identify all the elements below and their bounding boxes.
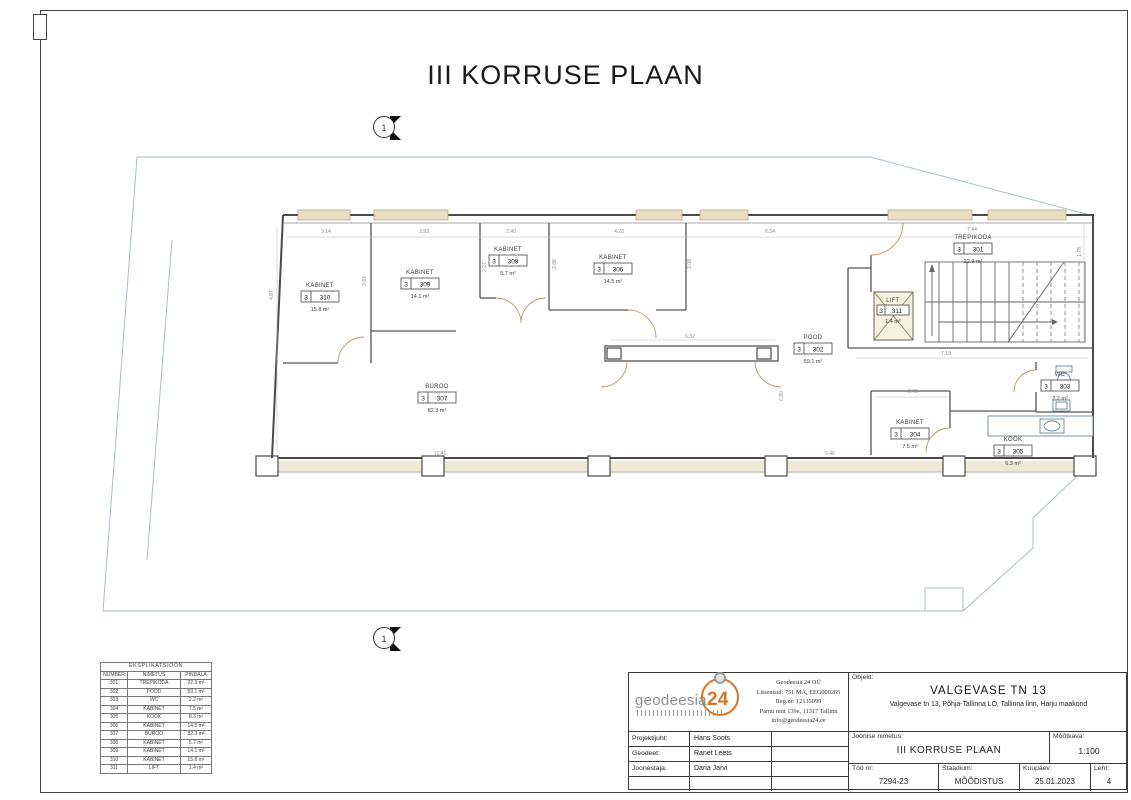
explication-cell: LIFT [128,765,181,774]
svg-text:3: 3 [957,247,961,254]
svg-text:14.1 m²: 14.1 m² [411,294,430,300]
pillar [943,456,965,476]
explication-cell: 310 [101,756,128,765]
room-label-301: TREPIKODA 3 301 22.9 m² [954,235,992,265]
explication-cell: 14.5 m² [181,722,212,731]
empty-cell [629,776,689,791]
svg-text:303: 303 [1060,384,1071,391]
explication-row: 304KABINET7.5 m² [101,705,212,714]
svg-text:6.3 m²: 6.3 m² [1005,461,1021,467]
logo-compass-icon [714,672,726,684]
dimension-label: 3.14 [321,229,331,235]
door-arc [871,223,903,255]
kitchen-sink-icon [1044,421,1060,431]
explication-cell: TREPIKODA [128,680,181,689]
door-arc [521,298,546,323]
svg-text:22.9 m²: 22.9 m² [964,259,983,265]
too-value: 7294-23 [849,777,938,786]
explication-title: EKSPLIKATSIOON [101,663,212,672]
explication-row: 311LIFT1.4 m² [101,765,212,774]
joonise-label: Joonise nimetus: [852,733,903,740]
company-regnr: Reg.nr: 12135099 [749,697,848,706]
svg-text:5.7 m²: 5.7 m² [500,271,516,277]
svg-text:3: 3 [894,432,898,439]
staadium-label: Staadium: [942,765,973,772]
dimension-label: 3.87 [362,276,368,286]
site-boundary [103,157,1094,611]
svg-text:3: 3 [1044,384,1048,391]
svg-text:3: 3 [304,295,308,302]
dimension-label: 7.44 [967,227,977,233]
dimension-label: 2.72 [908,389,918,395]
company-address: Pärnu mnt 139e, 11317 Tallinn [749,707,848,716]
explication-cell: 2.2 m² [181,697,212,706]
joonestaja-value-cell: Daria Jarvi [689,761,771,776]
window [888,210,972,220]
objekt-address: Valgevase tn 13, Põhja-Tallinna LO, Tall… [849,701,1128,708]
door-arc [601,361,627,387]
geodeet-value-cell: Ranet Leets [689,746,771,761]
explication-row: 302POOD59.1 m² [101,688,212,697]
svg-text:KABINET: KABINET [306,283,334,289]
frame-tab [33,14,47,40]
logo-ruler-icon [637,710,723,716]
projektijuht-label-cell: Projektijuht: [629,731,689,746]
svg-text:LIFT: LIFT [886,298,900,304]
leht-value: 4 [1091,777,1127,786]
logo-text-orange: 24 [707,689,729,710]
joonestaja-label-cell: Joonestaja: [629,761,689,776]
room-label-310: KABINET 3 310 15.8 m² [301,283,339,313]
explication-cell: KABINET [128,705,181,714]
section-marker-number: 1 [373,116,395,138]
svg-text:KABINET: KABINET [494,247,522,253]
mootkava-cell: Mõõtkava: 1:100 [1049,731,1128,763]
explication-col-nimetus: NIMETUS [128,671,181,680]
svg-text:1.4 m²: 1.4 m² [885,319,901,325]
explication-body: 301TREPIKODA22.9 m²302POOD59.1 m²303WC2.… [101,680,212,774]
explication-cell: 7.5 m² [181,705,212,714]
dimension-label: 4.28 [614,229,624,235]
svg-text:306: 306 [613,267,624,274]
door-arc [926,428,950,452]
room-label-303: WC 3 303 2.2 m² [1041,372,1079,402]
explication-row: 310KABINET15.8 m² [101,756,212,765]
svg-text:305: 305 [1013,449,1024,456]
explication-table: EKSPLIKATSIOON NUMBER NIMETUS PINDALA 30… [100,662,212,774]
svg-text:TREPIKODA: TREPIKODA [954,235,991,241]
svg-text:15.8 m²: 15.8 m² [311,307,330,313]
svg-text:3: 3 [879,308,883,315]
stair-walk-arrow-icon [1052,319,1058,325]
stair-up-arrow-icon [929,264,935,272]
svg-text:3: 3 [797,347,801,354]
explication-cell: WC [128,697,181,706]
kuupaev-label: Kuupäev: [1023,765,1052,772]
company-logo: geodeesia24 [629,673,747,729]
svg-text:311: 311 [892,308,903,315]
room-label-308: KABINET 3 308 5.7 m² [489,247,527,277]
explication-row: 303WC2.2 m² [101,697,212,706]
staadium-value: MÕÕDISTUS [939,777,1019,786]
explication-cell: 8.3 m² [181,714,212,723]
joonise-name: III KORRUSE PLAAN [849,745,1049,756]
empty-cell [771,776,848,791]
door-arc [628,310,656,338]
objekt-cell: Objekt: VALGEVASE TN 13 Valgevase tn 13,… [848,673,1128,731]
pillar [1074,456,1096,476]
logo-text: geodeesia24 [635,689,729,711]
dimension-label: 6.32 [685,334,695,340]
company-name: Geodeesia 24 OÜ [749,678,848,687]
svg-text:KABINET: KABINET [599,255,627,261]
svg-text:301: 301 [973,247,984,254]
page-title: III KORRUSE PLAAN [0,60,1131,91]
kuupaev-value: 25.01.2023 [1020,777,1090,786]
staadium-cell: Staadium: MÕÕDISTUS [938,763,1019,791]
explication-cell: 22.9 m² [181,680,212,689]
explication-cell: 82.3 m² [181,731,212,740]
dimension-label: 2.40 [506,229,516,235]
explication-cell: 14.1 m² [181,748,212,757]
logo-cell: geodeesia24 [629,673,749,731]
pillar [765,456,787,476]
svg-text:307: 307 [437,396,448,403]
svg-text:POOD: POOD [804,335,823,341]
explication-row: 306KABINET14.5 m² [101,722,212,731]
explication-cell: 1.4 m² [181,765,212,774]
explication-cell: KABINET [128,748,181,757]
explication-cell: 307 [101,731,128,740]
empty-cell [771,746,848,761]
pillar [588,456,610,476]
explication-cell: KÖÖK [128,714,181,723]
explication-cell: 15.8 m² [181,756,212,765]
dimension-label: 1.78 [1077,247,1083,257]
explication-cell: 308 [101,739,128,748]
window [988,210,1066,220]
svg-text:7.5 m²: 7.5 m² [902,444,918,450]
svg-text:309: 309 [420,282,431,289]
explication-cell: 305 [101,714,128,723]
explication-cell: 5.7 m² [181,739,212,748]
svg-text:308: 308 [508,259,519,266]
explication-cell: POOD [128,688,181,697]
svg-text:59.1 m²: 59.1 m² [804,359,823,365]
explication-cell: KABINET [128,756,181,765]
sink-icon [1056,402,1067,409]
svg-text:82.3 m²: 82.3 m² [428,408,447,414]
pillar [422,456,444,476]
svg-text:WC: WC [1055,372,1066,378]
title-block: geodeesia24 Geodeesia 24 OÜ Litsentsid: … [628,672,1127,790]
room-label-304: KABINET 3 304 7.5 m² [891,420,929,450]
explication-cell: 309 [101,748,128,757]
sheet: III KORRUSE PLAAN 1 1 [0,0,1131,800]
company-info-cell: Geodeesia 24 OÜ Litsentsid: 751 MA, EEG0… [749,673,848,731]
window [298,210,350,220]
explication-cell: 311 [101,765,128,774]
svg-text:3: 3 [597,267,601,274]
projektijuht-value-cell: Hans Soots [689,731,771,746]
fixtures [988,366,1093,436]
leht-cell: Leht: 4 [1090,763,1127,791]
section-marker-top: 1 [373,115,407,141]
stairs [925,262,1085,342]
kuupaev-cell: Kuupäev: 25.01.2023 [1019,763,1090,791]
dimension-label: 6.34 [765,229,775,235]
window [700,210,748,220]
company-license: Litsentsid: 751 MA, EEG000265 [749,688,848,697]
room-label-302: POOD 3 302 59.1 m² [794,335,832,365]
svg-text:3: 3 [404,282,408,289]
svg-text:3: 3 [492,259,496,266]
dimension-label: 3.08 [687,259,693,269]
dimension-label: 6.46 [825,451,835,457]
door-arc [1014,370,1036,392]
dimension-label: 4.87 [269,290,275,300]
dimension-label: 7.19 [941,351,951,357]
explication-row: 307BÜROO82.3 m² [101,731,212,740]
bottom-facade [256,456,1096,476]
door-arc [496,298,521,323]
dimension-label: 12.41 [434,451,447,457]
svg-text:BÜROO: BÜROO [425,383,449,390]
explication-cell: 303 [101,697,128,706]
svg-text:302: 302 [813,347,824,354]
window [636,210,682,220]
explication-row: 305KÖÖK8.3 m² [101,714,212,723]
dimension-label: 2.27 [482,262,488,272]
svg-text:3: 3 [997,449,1001,456]
svg-text:KÖÖK: KÖÖK [1004,436,1023,443]
empty-cell [771,731,848,746]
door-arc [338,337,364,363]
explication-col-pindala: PINDALA [181,671,212,680]
dimension-label: 6.80 [779,391,785,401]
svg-text:310: 310 [320,295,331,302]
explication-cell: 306 [101,722,128,731]
objekt-name: VALGEVASE TN 13 [849,685,1128,697]
leht-label: Leht: [1094,765,1109,772]
explication-cell: KABINET [128,739,181,748]
room-label-309: KABINET 3 309 14.1 m² [401,270,439,300]
floor-plan: 3.14 3.93 2.40 4.28 6.34 7.44 4.87 3.87 … [60,145,1110,645]
svg-text:KABINET: KABINET [406,270,434,276]
svg-text:KABINET: KABINET [896,420,924,426]
explication-cell: 302 [101,688,128,697]
door-arc [755,361,781,387]
too-cell: Töö nr: 7294-23 [848,763,938,791]
window [374,210,448,220]
geodeet-label-cell: Geodeet: [629,746,689,761]
mootkava-value: 1:100 [1050,746,1128,756]
svg-text:2.2 m²: 2.2 m² [1052,396,1068,402]
explication-cell: BÜROO [128,731,181,740]
company-email: info@geodeesia24.ee [749,716,848,725]
explication-cell: 304 [101,705,128,714]
empty-cell [771,761,848,776]
mootkava-label: Mõõtkava: [1053,733,1084,740]
logo-text-gray: geodeesia [635,692,707,709]
room-label-306: KABINET 3 306 14.5 m² [594,255,632,285]
pillar [256,456,278,476]
svg-text:3: 3 [421,396,425,403]
objekt-label: Objekt: [852,674,874,681]
windows [298,210,1066,220]
explication-row: 301TREPIKODA22.9 m² [101,680,212,689]
empty-cell [689,776,771,791]
dimension-label: 3.93 [419,229,429,235]
explication-row: 308KABINET5.7 m² [101,739,212,748]
room-label-307: BÜROO 3 307 82.3 m² [418,383,456,414]
explication-col-number: NUMBER [101,671,128,680]
explication-cell: KABINET [128,722,181,731]
svg-text:304: 304 [910,432,921,439]
too-label: Töö nr: [852,765,874,772]
explication-cell: 301 [101,680,128,689]
dimension-label: 2.88 [552,259,558,269]
svg-text:14.5 m²: 14.5 m² [604,279,623,285]
explication-row: 309KABINET14.1 m² [101,748,212,757]
joonise-cell: Joonise nimetus: III KORRUSE PLAAN [848,731,1049,763]
explication-cell: 59.1 m² [181,688,212,697]
